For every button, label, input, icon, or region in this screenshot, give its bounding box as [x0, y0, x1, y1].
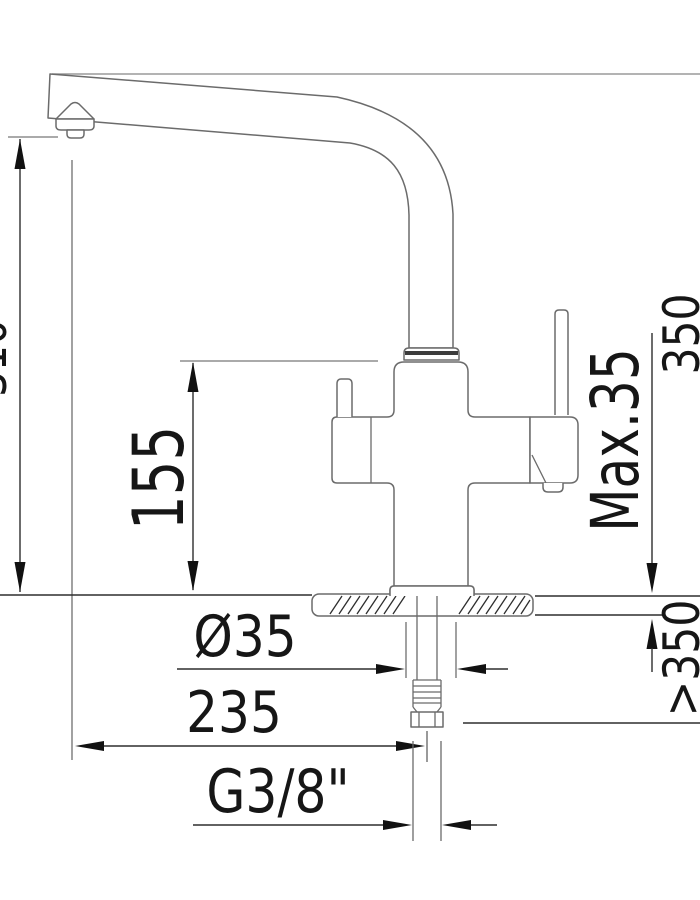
aerator-housing [56, 119, 94, 130]
dimension-drawing: 310 155 350 Max.35 >350 Ø35 235 [0, 0, 700, 900]
dimension-left-height: 310 [0, 139, 26, 592]
side-lever-bar [555, 310, 568, 415]
arrowhead-left-icon [457, 664, 486, 674]
dim-label-max35: Max.35 [577, 348, 654, 531]
dimension-max-deck-thickness: Max.35 [577, 348, 657, 672]
tap-body [332, 362, 530, 588]
shank-assembly [411, 596, 443, 841]
dim-label-min-clearance: >350 [653, 600, 700, 717]
arrowhead-right-icon [396, 741, 425, 751]
aerator-tip [67, 130, 84, 138]
mounting-plate [312, 586, 533, 616]
dim-label-350: 350 [653, 293, 700, 374]
side-lever-body [530, 417, 578, 483]
arrowhead-down-icon [647, 563, 658, 593]
base-flange-top [390, 586, 474, 596]
dim-label-g38: G3/8" [206, 758, 349, 827]
arrowhead-left-icon [442, 820, 471, 830]
arrowhead-up-icon [188, 362, 199, 392]
arrowhead-left-icon [75, 741, 104, 751]
dimension-total-height: 350 [647, 293, 700, 593]
arrowhead-right-icon [383, 820, 412, 830]
dimension-underspout-height: 155 [118, 362, 199, 591]
hose-fitting-ribs [413, 680, 441, 707]
dimension-thread-size: G3/8" [193, 758, 497, 830]
arrowhead-up-icon [15, 139, 26, 169]
dim-label-155: 155 [118, 426, 199, 530]
dim-label-clipped-height: 310 [0, 319, 18, 397]
arrowhead-down-icon [15, 562, 26, 592]
spout-and-neck [48, 74, 453, 348]
arrowhead-down-icon [188, 561, 199, 591]
drawing-canvas: 310 155 350 Max.35 >350 Ø35 235 [0, 0, 700, 900]
hex-nut [411, 712, 443, 727]
dimension-spout-reach: 235 [75, 679, 427, 762]
dim-label-235: 235 [186, 679, 282, 746]
lever-nub [543, 483, 563, 492]
filter-lever [337, 379, 352, 417]
dim-label-o35: Ø35 [193, 603, 296, 670]
arrowhead-right-icon [376, 664, 405, 674]
